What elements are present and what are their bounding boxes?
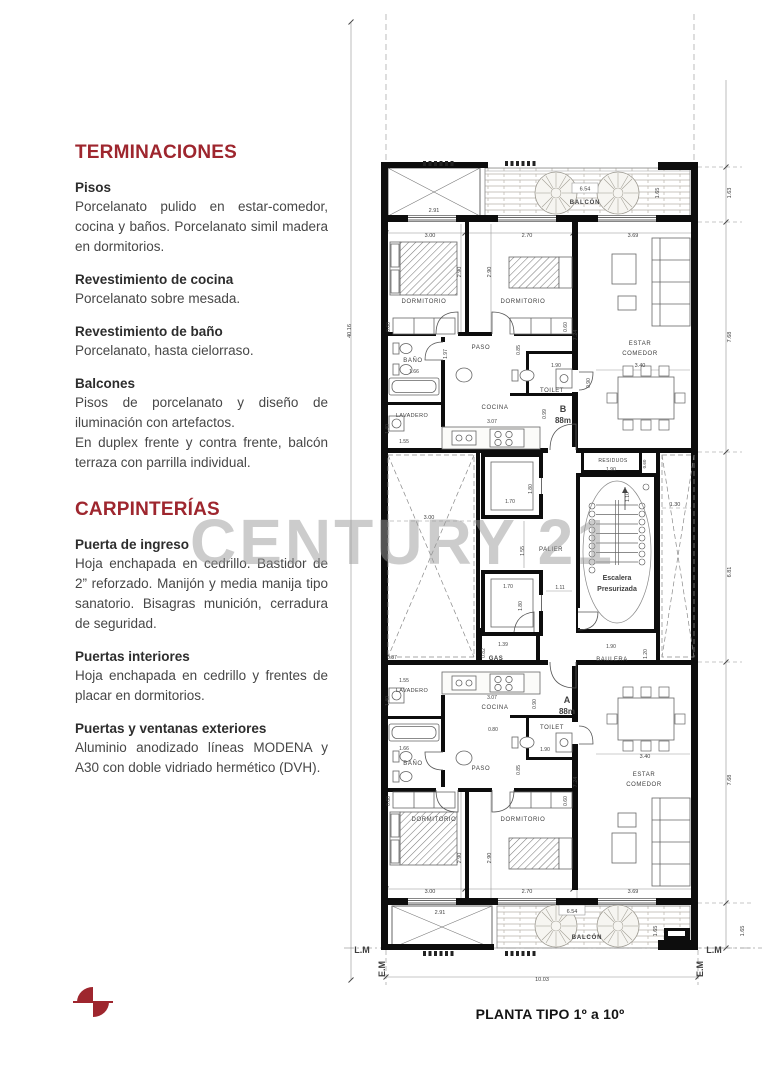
plan-label: Escalera [603, 575, 632, 582]
plan-label: 7.68 [727, 775, 733, 786]
spec-title: Balcones [75, 376, 328, 391]
plan-label: TOILET [540, 725, 564, 731]
logo-quarter-top [77, 987, 93, 1002]
plan-label: 0.85 [516, 765, 522, 775]
plan-label: 3.07 [487, 695, 497, 701]
plan-label: 7.68 [727, 332, 733, 343]
plan-label: 0.85 [516, 345, 522, 355]
plan-label: L.M [354, 945, 370, 955]
dining-table [618, 377, 674, 419]
spec-title: Puerta de ingreso [75, 537, 328, 552]
plan-labels: 2.916.54BALCÓN1.651.633.002.703.692.902.… [347, 187, 746, 984]
windows [408, 216, 656, 905]
plan-label: 3.00 [425, 233, 436, 239]
bidet-icon [393, 364, 399, 375]
dimension-guides [344, 14, 762, 985]
bidet-icon [393, 751, 399, 762]
plan-label: DORMITORIO [501, 299, 546, 305]
elevator-shaft [483, 455, 541, 517]
plan-label: 1.80 [518, 601, 524, 611]
plan-label: 1.80 [528, 484, 534, 494]
plan-label: PASO [472, 345, 491, 351]
kitchen-counter [442, 672, 540, 694]
patio-left [388, 455, 474, 657]
plan-label: 1.65 [740, 926, 746, 937]
plan-label: 2.91 [435, 910, 446, 916]
plan-label: 0.60 [386, 796, 392, 806]
plan-label: 1.20 [643, 649, 649, 659]
plan-label: 1.70 [503, 584, 513, 590]
double-bed [400, 812, 457, 865]
spec-body: Hoja enchapada en cedrillo. Bastidor de … [75, 554, 328, 634]
plan-label: TOILET [540, 388, 564, 394]
sofa [652, 798, 690, 886]
unit-b [389, 238, 690, 449]
plan-label: DORMITORIO [412, 817, 457, 823]
spec-body: Aluminio anodizado líneas MODENA y A30 c… [75, 738, 328, 778]
spec-title: Revestimiento de cocina [75, 272, 328, 287]
plan-label: 1.30 [670, 502, 681, 508]
kitchen-counter [442, 427, 540, 449]
plan-label: 1.40 [385, 424, 391, 434]
spec-item-pisos: Pisos Porcelanato pulido en estar-comedo… [75, 180, 328, 257]
plan-label: 2.91 [429, 208, 440, 214]
plan-label: COCINA [482, 705, 509, 711]
spec-item-revestimiento-cocina: Revestimiento de cocina Porcelanato sobr… [75, 272, 328, 309]
shaft-bottom [392, 906, 492, 948]
plan-label: DORMITORIO [402, 299, 447, 305]
spec-item-balcones: Balcones Pisos de porcelanato y diseño d… [75, 376, 328, 473]
plan-label: 2.90 [457, 267, 463, 278]
sofa [652, 238, 690, 326]
plan-label: DORMITORIO [501, 817, 546, 823]
plan-label: 1.55 [520, 546, 526, 556]
plan-label: 0.99 [542, 409, 548, 419]
plan-label: 1.66 [399, 746, 409, 752]
tree-icon [597, 905, 639, 947]
spec-body: Hoja enchapada en cedrillo y frentes de … [75, 666, 328, 706]
plan-label: 10.03 [535, 977, 549, 983]
vents [423, 161, 536, 956]
armchair [612, 254, 636, 284]
elevator-shaft [483, 572, 541, 634]
plan-label: 6.54 [567, 909, 578, 915]
plan-label: 0.87 [387, 655, 397, 661]
spec-body: Porcelanato pulido en estar-comedor, coc… [75, 197, 328, 257]
plan-label: 1.55 [399, 439, 409, 445]
basin-icon [456, 368, 472, 382]
section-terminaciones: TERMINACIONES Pisos Porcelanato pulido e… [75, 142, 328, 473]
balcony-bottom [392, 905, 690, 948]
spec-title: Pisos [75, 180, 328, 195]
bathtub-icon [389, 724, 439, 741]
plan-label: 0.90 [586, 378, 592, 388]
bathtub-icon [389, 378, 439, 395]
plan-label: 2.90 [457, 853, 463, 864]
washer-icon [389, 416, 404, 431]
tree-icon [597, 172, 639, 214]
dining-table [618, 698, 674, 740]
spec-item-puertas-ventanas-ext: Puertas y ventanas exteriores Aluminio a… [75, 721, 328, 778]
plan-label: 3.69 [628, 889, 639, 895]
spec-body: Porcelanato sobre mesada. [75, 289, 328, 309]
plan-label: 2.90 [487, 853, 493, 864]
spec-item-puerta-ingreso: Puerta de ingreso Hoja enchapada en cedr… [75, 537, 328, 634]
stairs [578, 481, 651, 630]
plan-label: COMEDOR [626, 782, 662, 788]
plan-label: BAULERA [596, 657, 628, 663]
page: { "sidebar": { "sections": [ { "heading"… [0, 0, 764, 1080]
unit-a [389, 672, 690, 886]
plan-label: A [564, 695, 571, 705]
stove-icon [490, 429, 524, 447]
plan-label: 2.90 [487, 267, 493, 278]
plan-label: 3.40 [640, 754, 651, 760]
plan-label: 1.66 [409, 369, 419, 375]
plan-label: 0.60 [563, 796, 569, 806]
plan-label: 3.00 [425, 889, 436, 895]
plan-label: 7.24 [573, 330, 579, 341]
plan-label: GAS [489, 656, 504, 662]
single-bed [509, 257, 559, 288]
door-gaps [436, 331, 582, 793]
spec-body: Porcelanato, hasta cielorraso. [75, 341, 328, 361]
single-bed [509, 838, 559, 869]
plan-label: 1.55 [399, 678, 409, 684]
plan-label: 1.10 [625, 492, 631, 502]
plan-label: PASO [472, 766, 491, 772]
washer-icon [389, 688, 404, 703]
armchair [612, 833, 636, 863]
plan-label: COMEDOR [622, 351, 658, 357]
plan-label: E.M [377, 961, 387, 977]
plan-label: 0.60 [563, 322, 569, 332]
spec-title: Puertas interiores [75, 649, 328, 664]
brand-logo [70, 984, 114, 1020]
spec-sidebar: TERMINACIONES Pisos Porcelanato pulido e… [75, 142, 328, 793]
plan-label: 0.60 [642, 459, 647, 468]
tree-icon [535, 172, 577, 214]
plan-label: 1.63 [727, 188, 733, 199]
plan-label: COCINA [482, 405, 509, 411]
plan-label: 1.90 [606, 644, 616, 650]
core [388, 455, 694, 657]
basin-icon [456, 751, 472, 765]
plan-label: 88m [555, 416, 571, 425]
plan-label: 2.70 [522, 889, 533, 895]
plan-label: 6.54 [580, 187, 591, 193]
tree-icon [535, 905, 577, 947]
plan-label: 1.90 [551, 363, 561, 369]
plan-label: BAÑO [403, 760, 422, 767]
plan-label: 3.00 [424, 515, 435, 521]
section-carpinterias: CARPINTERÍAS Puerta de ingreso Hoja ench… [75, 499, 328, 778]
plan-label: 1.90 [606, 467, 616, 473]
plan-label: BALCÓN [572, 933, 602, 941]
spec-body: Pisos de porcelanato y diseño de ilumina… [75, 393, 328, 473]
plan-label: 1.97 [443, 349, 449, 359]
spec-title: Puertas y ventanas exteriores [75, 721, 328, 736]
plan-label: 1.39 [498, 642, 508, 648]
logo-quarter-bottom [93, 1002, 109, 1017]
shaft-top [388, 168, 480, 216]
plan-label: 40.16 [347, 324, 353, 338]
plan-label: 88m [559, 707, 575, 716]
toilet-icon [393, 343, 399, 354]
plan-label: 1.40 [385, 696, 391, 706]
plan-label: 6.81 [727, 567, 733, 578]
stove-icon [490, 674, 524, 692]
toilet-icon [393, 771, 399, 782]
patio-right [662, 455, 694, 657]
plan-label: E.M [695, 961, 705, 977]
plan-label: 1.65 [653, 926, 659, 937]
plan-label: L.M [706, 945, 722, 955]
plan-label: 3.69 [628, 233, 639, 239]
plan-label: 1.65 [655, 188, 661, 199]
plan-label: 1.90 [540, 747, 550, 753]
plan-label: 3.40 [635, 363, 646, 369]
walls [381, 162, 698, 950]
plan-label: 0.90 [532, 699, 538, 709]
plan-label: 1.70 [505, 499, 515, 505]
plan-label: 0.80 [488, 727, 498, 733]
double-bed [400, 242, 457, 295]
spec-item-puertas-interiores: Puertas interiores Hoja enchapada en ced… [75, 649, 328, 706]
plan-label: 7.24 [573, 777, 579, 788]
spec-item-revestimiento-bano: Revestimiento de baño Porcelanato, hasta… [75, 324, 328, 361]
plan-label: PALIER [539, 547, 563, 553]
plan-label: ESTAR [633, 772, 656, 778]
plan-label: RESIDUOS [598, 458, 628, 464]
plan-label: ESTAR [629, 341, 652, 347]
plan-label: B [560, 404, 567, 414]
plan-label: LAVADERO [396, 413, 429, 419]
plan-label: BALCÓN [570, 198, 600, 206]
spec-title: Revestimiento de baño [75, 324, 328, 339]
plan-label: 1.11 [555, 585, 565, 591]
section-heading-terminaciones: TERMINACIONES [75, 142, 328, 164]
plan-caption: PLANTA TIPO 1º a 10º [420, 1006, 680, 1022]
plan-label: 2.70 [522, 233, 533, 239]
plan-label: 3.07 [487, 419, 497, 425]
plan-label: LAVADERO [396, 688, 429, 694]
plan-label: BAÑO [403, 357, 422, 364]
plan-label: 0.60 [386, 322, 392, 332]
plan-label: 0.82 [481, 648, 487, 658]
balcony-top [388, 168, 690, 217]
doors [425, 312, 593, 812]
plan-label: Presurizada [597, 586, 637, 593]
section-heading-carpinterias: CARPINTERÍAS [75, 499, 328, 521]
